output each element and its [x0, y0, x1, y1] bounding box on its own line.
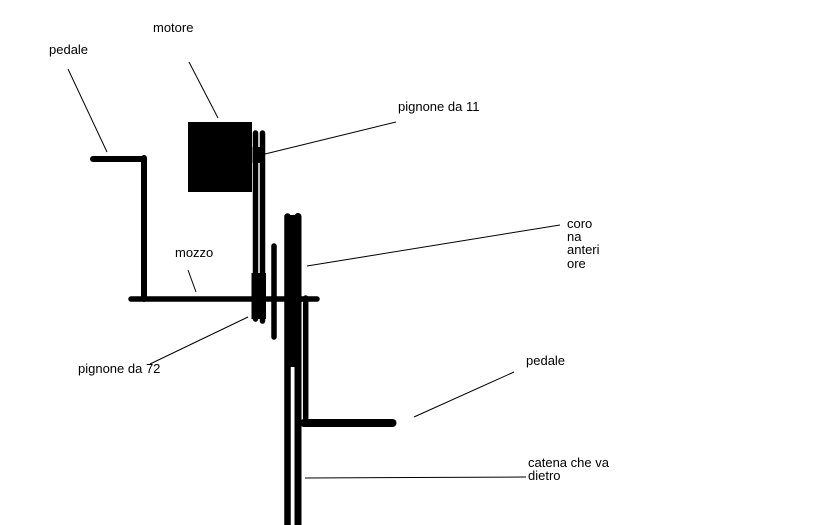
label-hub: mozzo — [175, 246, 213, 259]
label-motor: motore — [153, 21, 193, 34]
pointer-pedal-left — [68, 69, 107, 152]
label-pedal-left: pedale — [49, 43, 88, 56]
pointer-chainring — [307, 225, 560, 266]
pointer-chain-rear — [305, 477, 526, 478]
label-sprocket-72: pignone da 72 — [78, 362, 160, 375]
label-chainring-line-4: ore — [567, 257, 600, 270]
label-chain-rear: catena che va dietro — [528, 456, 609, 482]
paint-canvas: pedale motore pignone da 11 mozzo coro n… — [0, 0, 840, 525]
label-chain-rear-line-2: dietro — [528, 469, 609, 482]
label-sprocket-11: pignone da 11 — [398, 100, 479, 113]
sprocket-11-block — [253, 147, 263, 163]
chainring-filler — [290, 215, 296, 367]
label-chainring-line-3: anteri — [567, 243, 600, 256]
motor-block — [188, 122, 252, 192]
sprocket-72-block — [252, 273, 267, 319]
pointer-sprocket-72 — [150, 317, 248, 364]
pointer-hub — [188, 270, 196, 292]
label-chainring: coro na anteri ore — [567, 217, 600, 270]
drawing-layer — [0, 0, 840, 525]
label-pedal-right: pedale — [526, 354, 565, 367]
pointer-sprocket-11 — [265, 122, 396, 154]
pointer-motor — [189, 62, 218, 118]
pointer-pedal-right — [414, 372, 514, 417]
